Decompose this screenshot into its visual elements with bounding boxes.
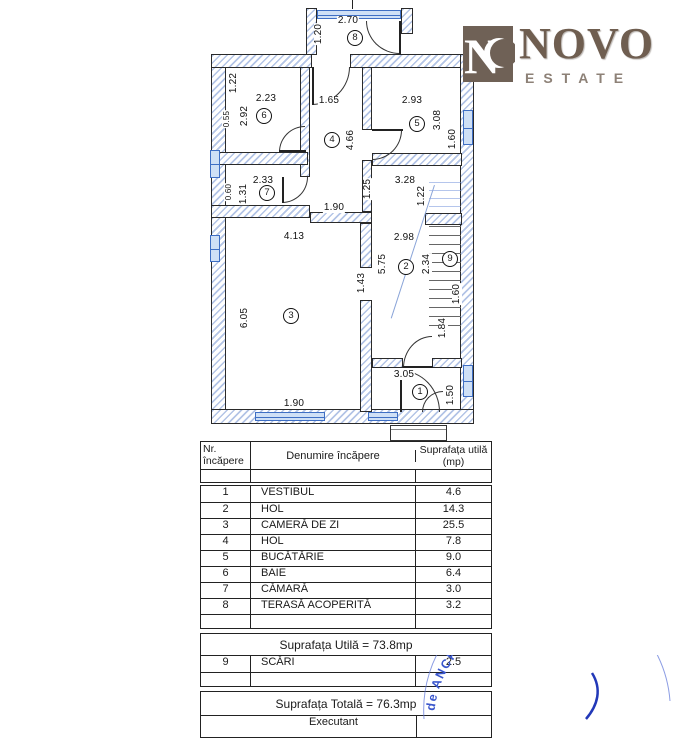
door-leaf xyxy=(403,366,433,368)
room-nr: 9 xyxy=(201,656,251,672)
room-label-3: 3 xyxy=(283,308,299,324)
room-label-8: 8 xyxy=(347,30,363,46)
dim-room6-height: 2.92 xyxy=(240,105,250,127)
logo-subtitle: ESTATE xyxy=(525,70,632,86)
dim-terrace-depth: 1.20 xyxy=(314,23,324,45)
window-left-bath xyxy=(210,150,220,178)
door-pantry xyxy=(282,177,308,203)
col-header-area: Suprafața utilă (mp) xyxy=(416,444,491,468)
dim-room7-window: 0.60 xyxy=(224,183,234,201)
table-empty-row xyxy=(201,469,491,482)
table-empty-row xyxy=(201,614,491,628)
window-right-kitchen xyxy=(463,110,473,145)
scanned-floor-plan-page: { "logo": { "mark": "N", "name": "NOVO",… xyxy=(0,0,677,720)
window-bottom-small xyxy=(368,412,398,421)
svg-text:de ANCPI să execute luc: de ANCPI să execute luc xyxy=(424,655,564,712)
room-name: HOL xyxy=(251,503,416,518)
dim-room6-top: 1.22 xyxy=(229,72,239,94)
dim-room2-top: 3.28 xyxy=(394,176,416,186)
ancpi-stamp: de ANCPI să execute luc xyxy=(420,655,677,720)
dim-room6-window: 0.55 xyxy=(222,110,232,128)
room-name: VESTIBUL xyxy=(251,486,416,502)
room-name: CĂMARĂ xyxy=(251,583,416,598)
dim-room3-passage: 1.43 xyxy=(357,272,367,294)
table-row: 8 TERASĂ ACOPERITĂ 3.2 xyxy=(201,598,491,614)
dim-room4-height: 4.66 xyxy=(346,129,356,151)
room-nr: 5 xyxy=(201,551,251,566)
door-bath xyxy=(279,126,305,152)
room-name: SCĂRI xyxy=(251,656,416,672)
table-row: 7 CĂMARĂ 3.0 xyxy=(201,582,491,598)
dim-room3-window: 1.90 xyxy=(283,399,305,409)
room-area: 6.4 xyxy=(416,567,491,582)
dim-stairs-window: 1.60 xyxy=(452,283,462,305)
table-row: 4 HOL 7.8 xyxy=(201,534,491,550)
door-hall-vestibule xyxy=(403,336,432,368)
wall-terrace-right xyxy=(401,8,413,34)
dim-room3-width: 4.13 xyxy=(283,232,305,242)
col-header-nr: Nr. încăpere xyxy=(201,442,251,469)
dim-room2-offset: 1.25 xyxy=(363,178,373,200)
dim-room7-width: 2.33 xyxy=(252,176,274,186)
room-name: TERASĂ ACOPERITĂ xyxy=(251,599,416,614)
dim-room5-height: 3.08 xyxy=(433,109,443,131)
table-row: 5 BUCĂTĂRIE 9.0 xyxy=(201,550,491,566)
room-area: 4.6 xyxy=(416,486,491,502)
stamp-arc-text: de ANCPI să execute luc xyxy=(424,655,564,712)
dim-room4-width: 1.65 xyxy=(318,96,340,106)
wall-room6-room7 xyxy=(211,152,308,165)
wall-room1-top-b xyxy=(432,358,462,368)
dim-room6-width: 2.23 xyxy=(255,94,277,104)
dim-stairs-top: 1.22 xyxy=(417,185,427,207)
logo-name: NOVO xyxy=(519,18,654,69)
table-row: 1 VESTIBUL 4.6 xyxy=(201,486,491,502)
dim-room2-width: 2.98 xyxy=(393,233,415,243)
wall-exterior-top-b xyxy=(350,54,474,68)
subtotal-text: Suprafața Utilă = 73.8mp xyxy=(279,638,412,652)
room-label-5: 5 xyxy=(409,116,425,132)
logo-mark: N xyxy=(463,26,515,86)
room-label-7: 7 xyxy=(259,185,275,201)
table-row: 2 HOL 14.3 xyxy=(201,502,491,518)
entrance-step xyxy=(390,425,447,441)
room-label-2: 2 xyxy=(398,259,414,275)
room-nr: 2 xyxy=(201,503,251,518)
room-nr: 3 xyxy=(201,519,251,534)
window-right-vestibule xyxy=(463,365,473,397)
wall-room3-top-mid xyxy=(310,212,372,223)
table-header-block: Nr. încăpere Denumire încăpere Suprafața… xyxy=(200,441,492,483)
room-area: 25.5 xyxy=(416,519,491,534)
wall-exterior-top-a xyxy=(211,54,312,68)
room-name: CAMERĂ DE ZI xyxy=(251,519,416,534)
dim-room5-window: 1.60 xyxy=(448,128,458,150)
door-leaf xyxy=(279,150,306,152)
window-bottom-living xyxy=(255,412,325,421)
table-row: 6 BAIE 6.4 xyxy=(201,566,491,582)
col-header-name: Denumire încăpere xyxy=(251,450,416,462)
room-label-9: 9 xyxy=(442,251,458,267)
novo-estate-logo: N NOVO ESTATE xyxy=(463,24,663,90)
dim-room3-height: 6.05 xyxy=(240,307,250,329)
dim-room1-width: 3.05 xyxy=(393,370,415,380)
dim-tick xyxy=(352,0,353,9)
dim-stairs-height: 2.34 xyxy=(422,253,432,275)
room-area: 3.2 xyxy=(416,599,491,614)
room-area: 3.0 xyxy=(416,583,491,598)
door-leaf xyxy=(312,67,314,105)
door-leaf xyxy=(372,129,403,131)
door-leaf xyxy=(399,21,401,54)
room-name: HOL xyxy=(251,535,416,550)
room-area: 7.8 xyxy=(416,535,491,550)
table-subtotal-block: Suprafața Utilă = 73.8mp xyxy=(200,633,492,656)
window-left-pantry xyxy=(210,235,220,262)
table-rooms-block: 1 VESTIBUL 4.6 2 HOL 14.3 3 CAMERĂ DE ZI… xyxy=(200,485,492,629)
door-leaf xyxy=(282,177,284,203)
table-row: 3 CAMERĂ DE ZI 25.5 xyxy=(201,518,491,534)
wall-room3-room2-a xyxy=(360,223,372,268)
wall-room1-top-a xyxy=(372,358,403,368)
room-name: BAIE xyxy=(251,567,416,582)
dim-room7-height: 1.31 xyxy=(239,183,249,205)
room-nr: 8 xyxy=(201,599,251,614)
wall-room4-room5-a xyxy=(362,67,372,130)
dim-room1-height: 1.50 xyxy=(446,384,456,406)
room-nr: 1 xyxy=(201,486,251,502)
room-area: 9.0 xyxy=(416,551,491,566)
room-nr: 4 xyxy=(201,535,251,550)
dim-room1-offset: 1.84 xyxy=(438,317,448,339)
total-text: Suprafața Totală = 76.3mp xyxy=(276,697,417,711)
room-name: BUCĂTĂRIE xyxy=(251,551,416,566)
room-nr: 6 xyxy=(201,567,251,582)
wall-room3-room2-b xyxy=(360,300,372,412)
dim-room5-width: 2.93 xyxy=(401,96,423,106)
dim-terrace-width: 2.70 xyxy=(337,16,359,26)
table-header-row: Nr. încăpere Denumire încăpere Suprafața… xyxy=(201,442,491,469)
stamp-signature xyxy=(586,673,598,719)
dim-corridor-width: 1.90 xyxy=(323,203,345,213)
wall-stairs-block xyxy=(425,213,462,225)
room-label-1: 1 xyxy=(412,384,428,400)
room-label-6: 6 xyxy=(256,108,272,124)
room-nr: 7 xyxy=(201,583,251,598)
stairs-room9 xyxy=(429,226,461,330)
executant-label: Executant xyxy=(251,716,416,737)
door-terrace-side xyxy=(366,21,400,54)
subtotal-row: Suprafața Utilă = 73.8mp xyxy=(201,634,491,655)
dim-room2-height: 5.75 xyxy=(378,253,388,275)
room-area: 14.3 xyxy=(416,503,491,518)
wall-room7-room3 xyxy=(211,205,310,218)
room-label-4: 4 xyxy=(324,132,340,148)
